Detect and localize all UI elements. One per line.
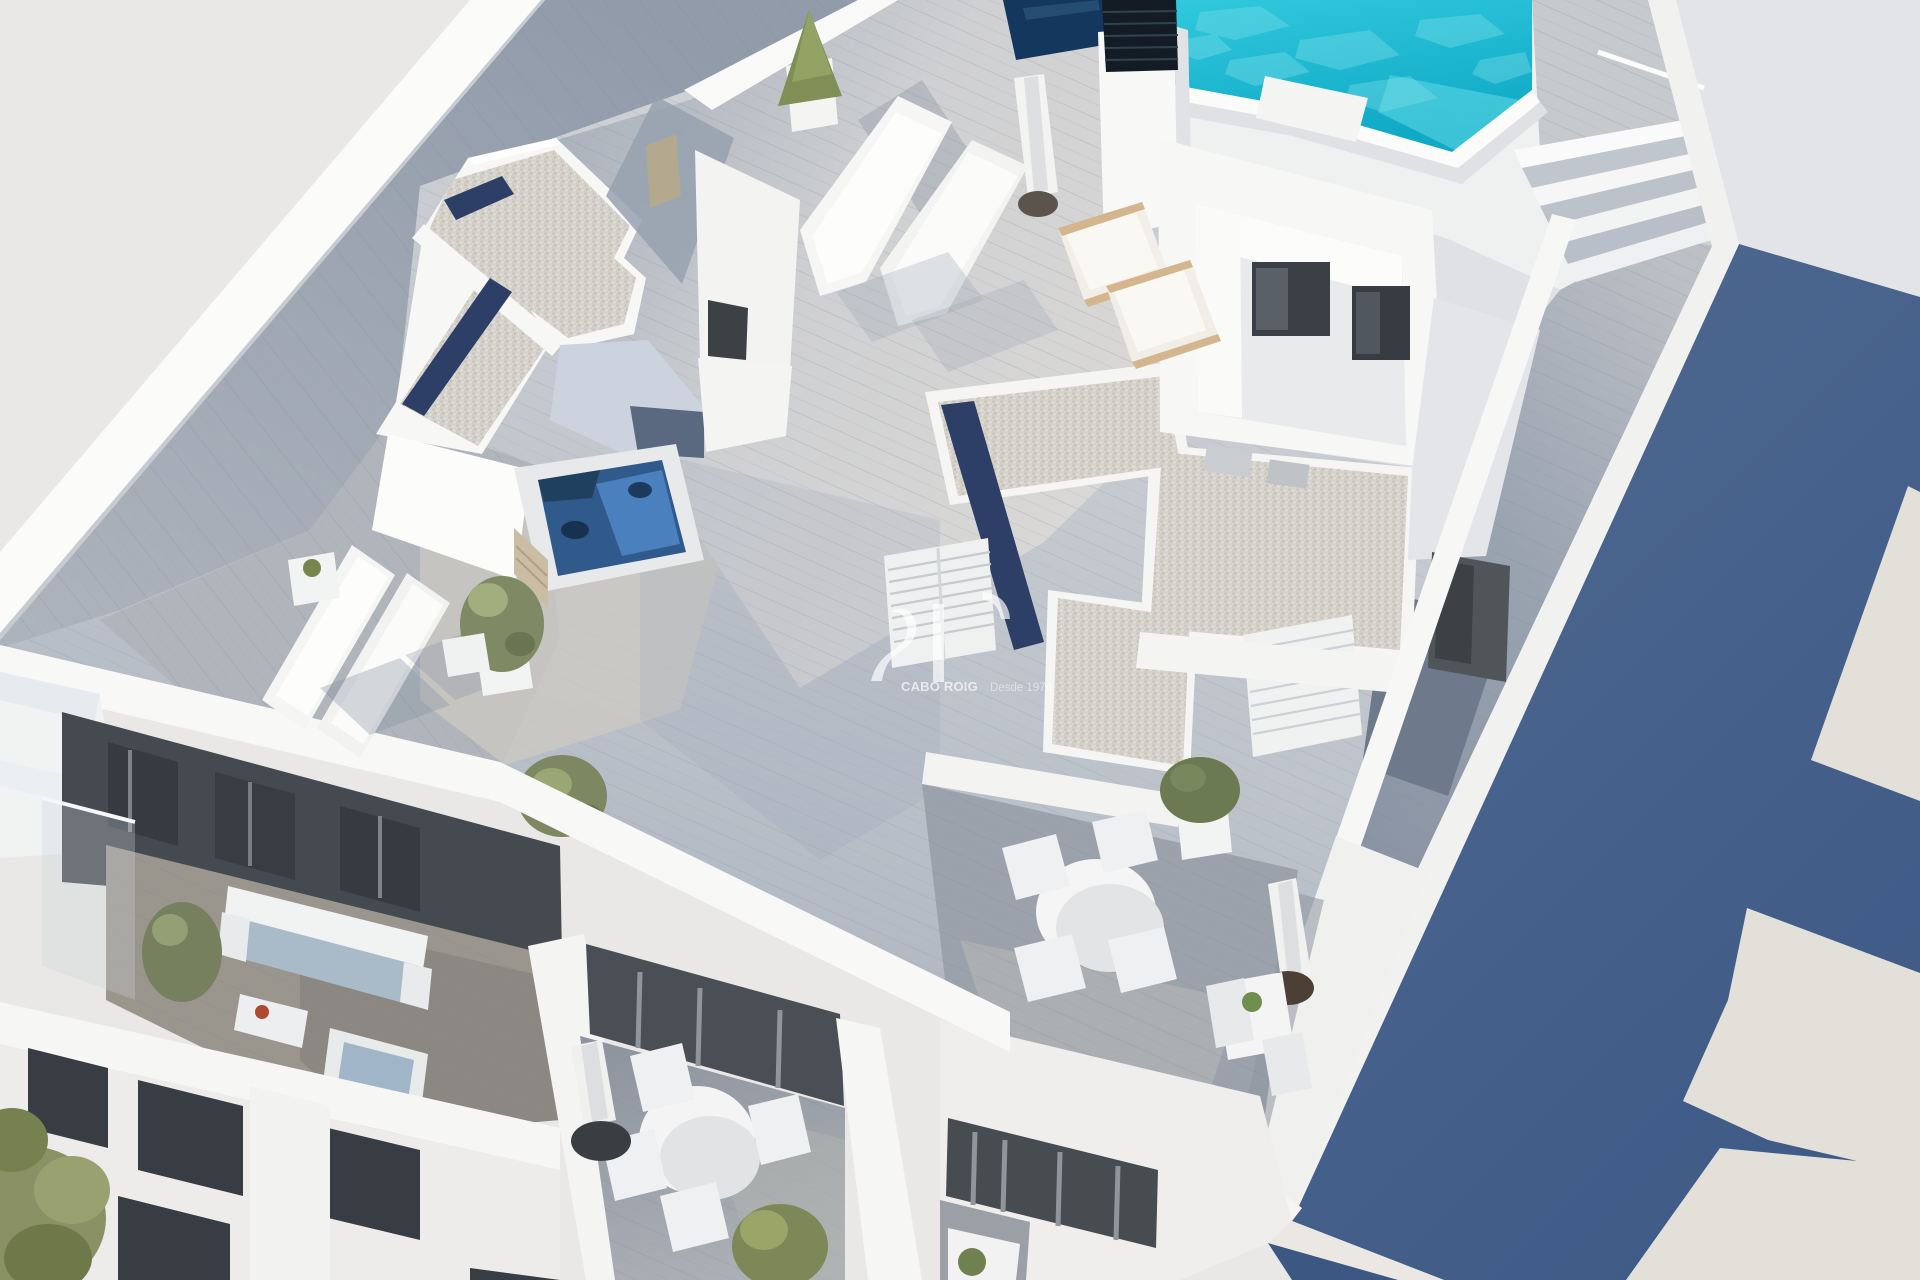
svg-text:Desde 1970: Desde 1970 [990,682,1052,694]
svg-text:CABO ROIG: CABO ROIG [901,679,978,694]
